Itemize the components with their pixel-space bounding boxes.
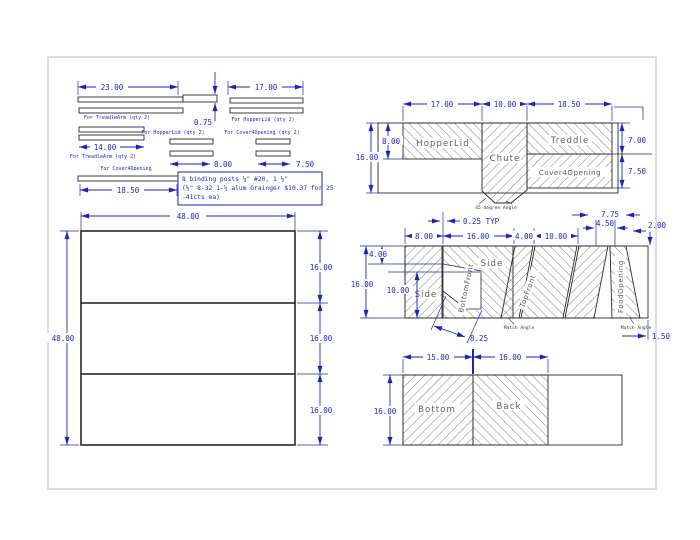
dim-16: 16.00	[356, 153, 379, 162]
note-line1: 8 binding posts ¼" #20, 1 ½"	[182, 175, 288, 183]
label-treddle: Treddle	[550, 136, 590, 146]
dim-16t: 16.00	[467, 232, 490, 241]
dim-200: 2.00	[648, 221, 667, 230]
strip	[78, 97, 183, 102]
strip-label: For TreadleArm (qty 2)	[84, 115, 150, 121]
dim-7: 7.00	[628, 136, 647, 145]
dim-17: 17.00	[255, 83, 278, 92]
dim-15: 15.00	[427, 353, 450, 362]
dim-4t: 4.00	[515, 232, 534, 241]
strip	[170, 139, 213, 144]
note-match-angle-2: Match Angle	[621, 325, 652, 331]
note-line2: (½" 8-32 1-¼ alum Grainger $10.37 for 25	[182, 184, 334, 192]
strip	[256, 151, 290, 156]
sheet-dim-height: 48.00	[52, 334, 75, 343]
strip-label: For TreadleArm (qty 2)	[70, 154, 136, 160]
dim-750: 7.50	[628, 167, 647, 176]
dim-14: 14.00	[94, 143, 117, 152]
sheet-row3-dim: 16.00	[310, 406, 333, 415]
dim-23: 23.00	[101, 83, 124, 92]
strip	[170, 151, 213, 156]
dim-075: 0.75	[194, 118, 212, 127]
strip	[79, 135, 144, 140]
dim-16l: 16.00	[374, 407, 397, 416]
svg-text:FoodOpening: FoodOpening	[617, 260, 625, 313]
dim-17: 17.00	[431, 100, 454, 109]
label-bottom: Bottom	[418, 405, 456, 415]
strip	[230, 108, 303, 113]
dim-8: 8.00	[214, 160, 233, 169]
dim-775: 7.75	[601, 210, 619, 219]
dim-450: 4.50	[596, 219, 615, 228]
piece-side-1	[405, 246, 442, 318]
strip-label: For HopperLid (qty 2)	[141, 130, 204, 136]
strip	[183, 95, 217, 102]
dim-16t: 16.00	[499, 353, 522, 362]
label-foodopening: FoodOpening	[615, 254, 626, 316]
dim-8: 8.00	[382, 137, 401, 146]
label-cover4opening: Cover4Opening	[539, 169, 601, 177]
dim-10: 10.00	[494, 100, 517, 109]
label-side1: Side	[415, 290, 438, 300]
cad-drawing-page: 23.00 For TreadleArm (qty 2) 0.75 17.00 …	[0, 0, 700, 540]
strip-label: For Cover4Opening	[100, 166, 151, 172]
label-hopperlid: HopperLid	[416, 139, 470, 149]
note-match-angle-1: Match Angle	[504, 325, 535, 331]
sheet-row1-dim: 16.00	[310, 263, 333, 272]
strip	[230, 98, 303, 103]
label-back: Back	[496, 402, 521, 412]
dim-10t: 10.00	[545, 232, 568, 241]
dim-10l: 10.00	[387, 286, 410, 295]
sheet-row2-dim: 16.00	[310, 334, 333, 343]
strip-label: For HopperLid (qty 2)	[231, 117, 294, 123]
strip	[79, 108, 183, 113]
dim-150: 1.50	[652, 332, 671, 341]
sheet-dim-width: 48.00	[177, 212, 200, 221]
dim-8: 8.00	[415, 232, 434, 241]
dim-750: 7.50	[296, 160, 315, 169]
note-line3: -41cts ea)	[182, 194, 220, 201]
dim-1850: 18.50	[117, 186, 140, 195]
dim-825: 8.25	[470, 334, 488, 343]
strip	[79, 127, 144, 132]
dim-1850: 18.50	[558, 100, 581, 109]
label-chute: Chute	[490, 154, 521, 164]
binding-posts-note: 8 binding posts ¼" #20, 1 ½" (½" 8-32 1-…	[178, 172, 334, 205]
dim-025-typ: 0.25 TYP	[463, 217, 500, 226]
dim-16l: 16.00	[351, 280, 374, 289]
dim-4l: 4.00	[369, 250, 388, 259]
note-45-degree: 45 degree Angle	[475, 205, 517, 211]
label-side2: Side	[481, 259, 504, 269]
cad-drawing: 23.00 For TreadleArm (qty 2) 0.75 17.00 …	[0, 0, 700, 540]
strip-label: For Cover4Opening (qty 2)	[224, 130, 299, 136]
strip	[256, 139, 290, 144]
